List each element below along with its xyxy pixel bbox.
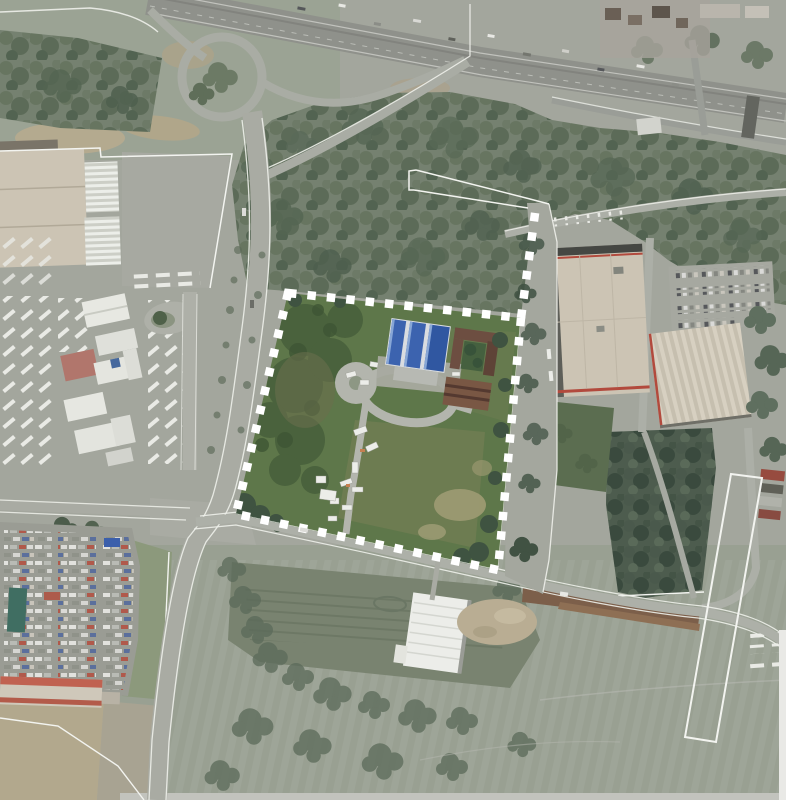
- aerial-map-image: [0, 0, 786, 800]
- photo-margin-right: [779, 630, 786, 800]
- blue-container: [104, 538, 120, 547]
- warehouse-a: [547, 244, 650, 398]
- aerial-map: [0, 0, 786, 800]
- red-roof-building: [0, 676, 120, 708]
- warehouse-b: [649, 323, 752, 429]
- teal-roof-building: [7, 588, 27, 633]
- forest-dense-block: [606, 428, 716, 598]
- rubble-patch: [457, 599, 537, 645]
